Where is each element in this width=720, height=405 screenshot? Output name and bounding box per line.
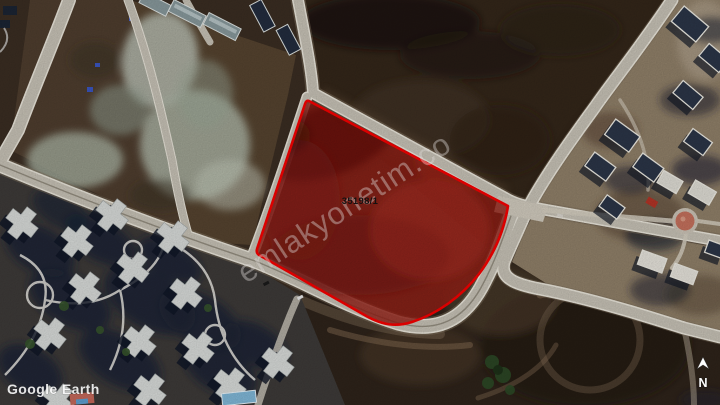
satellite-map-canvas[interactable]: emlakyonetim.co 35198/1 Google Earth N	[0, 0, 720, 405]
google-earth-attribution: Google Earth	[7, 381, 100, 397]
north-label: N	[698, 376, 707, 390]
image-grain	[0, 0, 720, 405]
